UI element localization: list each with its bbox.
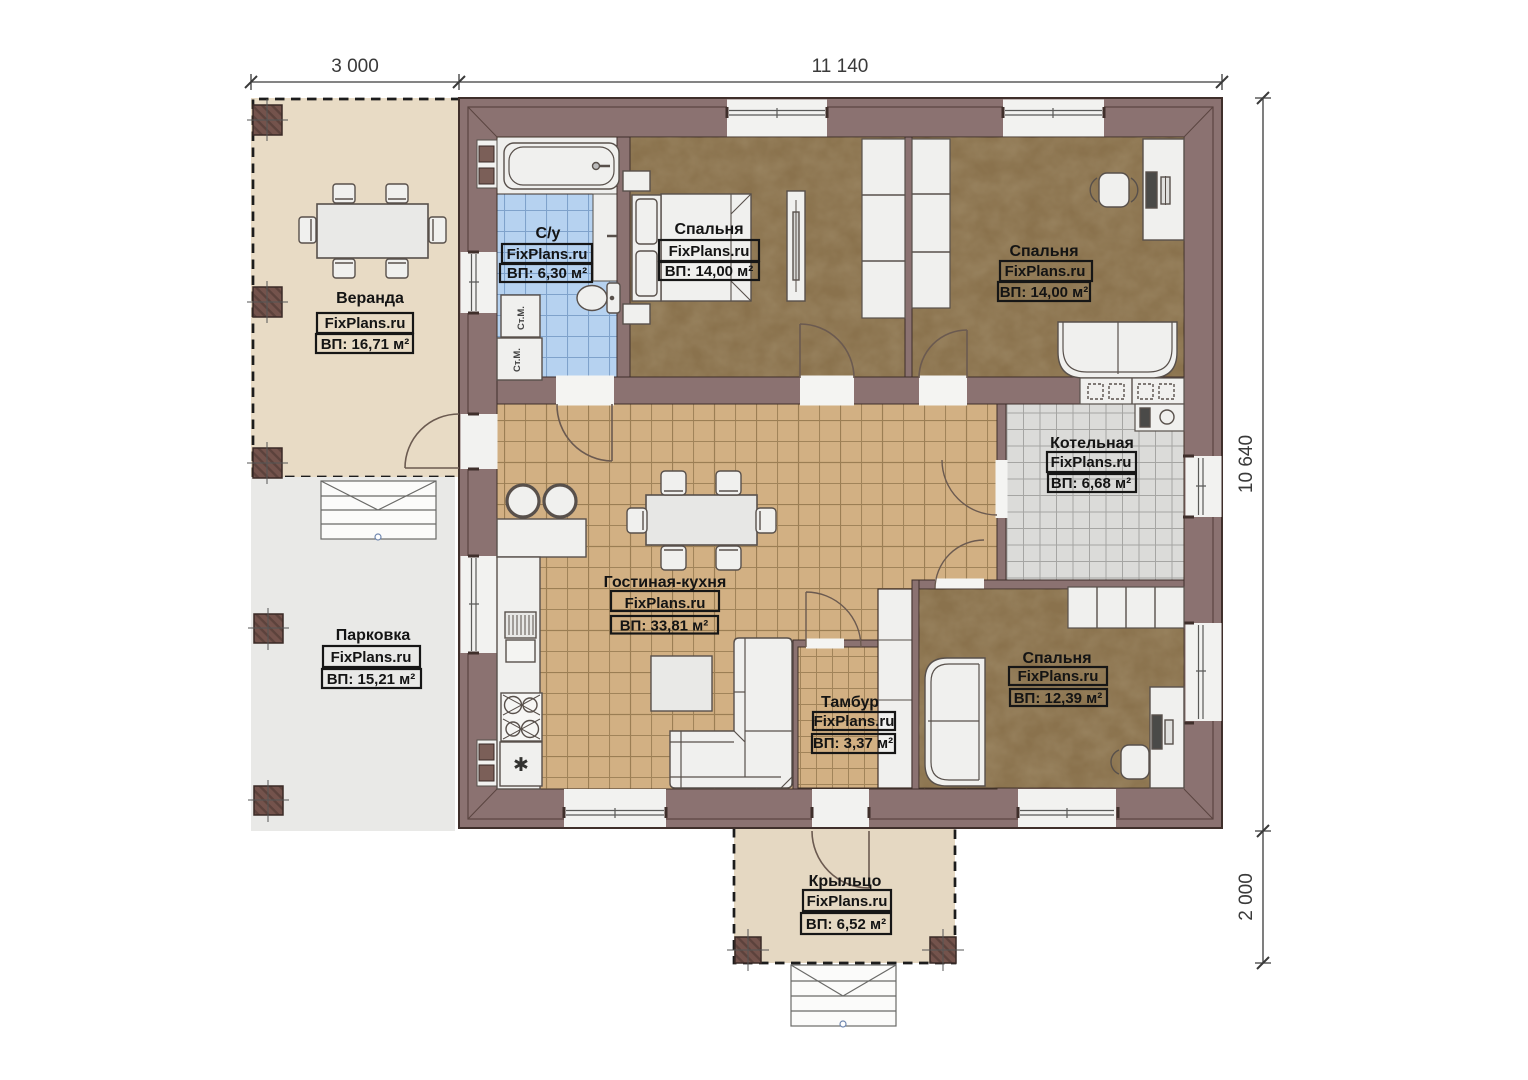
svg-text:FixPlans.ru: FixPlans.ru (507, 246, 588, 263)
svg-text:ВП: 6,52 м²: ВП: 6,52 м² (806, 916, 886, 933)
svg-text:FixPlans.ru: FixPlans.ru (669, 243, 750, 260)
svg-text:ВП: 3,37 м²: ВП: 3,37 м² (813, 735, 893, 752)
svg-text:Гостиная-кухня: Гостиная-кухня (604, 574, 727, 591)
svg-text:11 140: 11 140 (812, 56, 869, 77)
svg-text:ВП: 15,21 м²: ВП: 15,21 м² (327, 671, 416, 688)
svg-text:ВП: 12,39 м²: ВП: 12,39 м² (1014, 690, 1103, 707)
svg-text:FixPlans.ru: FixPlans.ru (1005, 263, 1086, 280)
svg-text:Тамбур: Тамбур (821, 694, 879, 711)
svg-text:FixPlans.ru: FixPlans.ru (807, 893, 888, 910)
svg-text:Парковка: Парковка (336, 627, 411, 644)
svg-text:FixPlans.ru: FixPlans.ru (325, 315, 406, 332)
svg-text:FixPlans.ru: FixPlans.ru (814, 713, 895, 730)
svg-text:FixPlans.ru: FixPlans.ru (625, 595, 706, 612)
svg-text:Ст.М.: Ст.М. (516, 306, 527, 330)
svg-text:Спальня: Спальня (1009, 243, 1078, 260)
svg-text:Веранда: Веранда (336, 290, 404, 307)
svg-text:FixPlans.ru: FixPlans.ru (331, 649, 412, 666)
svg-text:✱: ✱ (513, 755, 529, 776)
svg-text:10 640: 10 640 (1236, 435, 1257, 493)
svg-text:FixPlans.ru: FixPlans.ru (1018, 668, 1099, 685)
svg-text:ВП: 6,68 м²: ВП: 6,68 м² (1051, 475, 1131, 492)
svg-text:FixPlans.ru: FixPlans.ru (1051, 454, 1132, 471)
svg-text:Котельная: Котельная (1050, 435, 1134, 452)
svg-text:ВП: 14,00 м²: ВП: 14,00 м² (665, 263, 754, 280)
svg-text:ВП: 14,00 м²: ВП: 14,00 м² (1000, 284, 1089, 301)
svg-text:Спальня: Спальня (674, 221, 743, 238)
svg-text:ВП: 33,81 м²: ВП: 33,81 м² (620, 618, 709, 635)
svg-text:Ст.М.: Ст.М. (512, 348, 523, 372)
svg-text:ВП: 6,30 м²: ВП: 6,30 м² (507, 265, 587, 282)
svg-text:3 000: 3 000 (331, 56, 379, 77)
svg-text:С/у: С/у (536, 225, 561, 242)
svg-text:Спальня: Спальня (1022, 650, 1091, 667)
svg-text:2 000: 2 000 (1236, 873, 1257, 921)
svg-text:ВП: 16,71 м²: ВП: 16,71 м² (321, 336, 410, 353)
svg-text:Крыльцо: Крыльцо (809, 873, 882, 890)
